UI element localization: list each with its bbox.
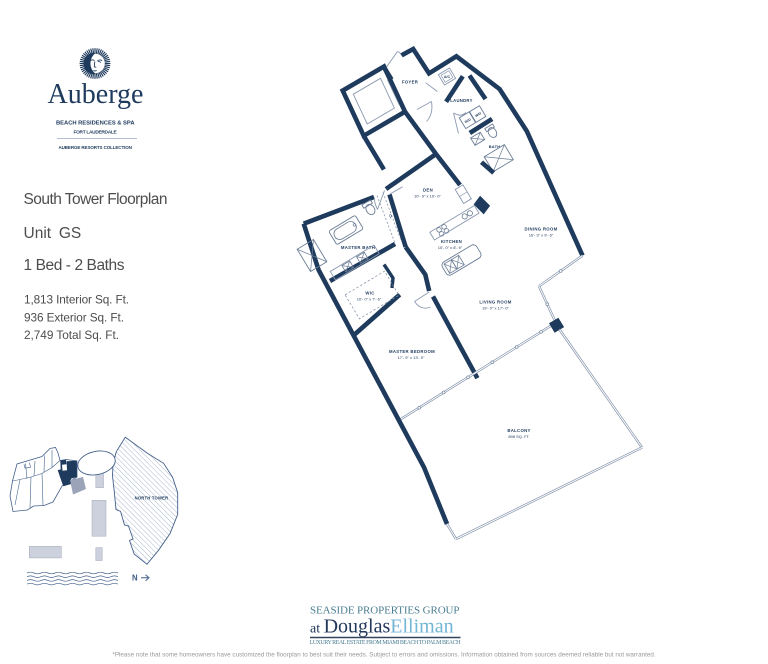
- svg-text:BALCONY: BALCONY: [507, 428, 530, 433]
- svg-text:LAUNDRY: LAUNDRY: [450, 98, 472, 103]
- svg-text:10'- 0" x 7'- 6": 10'- 0" x 7'- 6": [357, 297, 382, 302]
- svg-text:South Tower Floorplan: South Tower Floorplan: [24, 191, 168, 208]
- svg-text:CL: CL: [388, 213, 394, 219]
- svg-text:19'- 0" x 17'- 0": 19'- 0" x 17'- 0": [482, 306, 509, 311]
- svg-text:KITCHEN: KITCHEN: [441, 239, 462, 244]
- svg-text:W/D: W/D: [474, 111, 482, 118]
- svg-text:BEACH RESIDENCES & SPA: BEACH RESIDENCES & SPA: [56, 121, 135, 127]
- svg-text:FORT LAUDERDALE: FORT LAUDERDALE: [74, 130, 118, 136]
- svg-text:LUXURY REAL ESTATE FROM MIAMI: LUXURY REAL ESTATE FROM MIAMI BEACH TO P…: [310, 640, 462, 646]
- svg-text:NORTH TOWER: NORTH TOWER: [135, 496, 169, 501]
- svg-text:N: N: [132, 574, 138, 583]
- svg-text:FOYER: FOYER: [402, 80, 419, 85]
- svg-text:*Please note that some homeown: *Please note that some homeowners have c…: [112, 652, 655, 659]
- svg-text:16'- 3" x 9'- 6": 16'- 3" x 9'- 6": [529, 233, 554, 238]
- svg-text:DINING ROOM: DINING ROOM: [525, 227, 558, 232]
- svg-text:A/C: A/C: [444, 75, 451, 79]
- svg-text:AUBERGE RESORTS COLLECTION: AUBERGE RESORTS COLLECTION: [59, 145, 133, 150]
- svg-text:LIVING ROOM: LIVING ROOM: [479, 300, 511, 305]
- svg-text:17'- 9" x 13'- 9": 17'- 9" x 13'- 9": [398, 355, 425, 360]
- svg-text:936 Exterior Sq. Ft.: 936 Exterior Sq. Ft.: [24, 311, 124, 325]
- svg-text:Unit GS: Unit GS: [24, 225, 82, 242]
- svg-text:1,813 Interior Sq. Ft.: 1,813 Interior Sq. Ft.: [24, 293, 129, 307]
- svg-text:MASTER BEDROOM: MASTER BEDROOM: [389, 349, 435, 354]
- svg-text:10'- 9" x 10'- 0": 10'- 9" x 10'- 0": [414, 194, 441, 199]
- svg-text:at DouglasElliman: at DouglasElliman: [310, 616, 454, 638]
- svg-text:W/D: W/D: [464, 117, 472, 124]
- svg-text:898 SQ. FT.: 898 SQ. FT.: [508, 434, 529, 439]
- svg-text:10'- 0" x 8'- 9": 10'- 0" x 8'- 9": [438, 245, 463, 250]
- svg-text:2,749 Total Sq. Ft.: 2,749 Total Sq. Ft.: [24, 328, 119, 342]
- svg-text:Auberge: Auberge: [48, 79, 144, 110]
- svg-text:WIC: WIC: [365, 291, 374, 296]
- svg-text:DEN: DEN: [423, 188, 433, 193]
- svg-text:1 Bed - 2 Baths: 1 Bed - 2 Baths: [24, 257, 125, 274]
